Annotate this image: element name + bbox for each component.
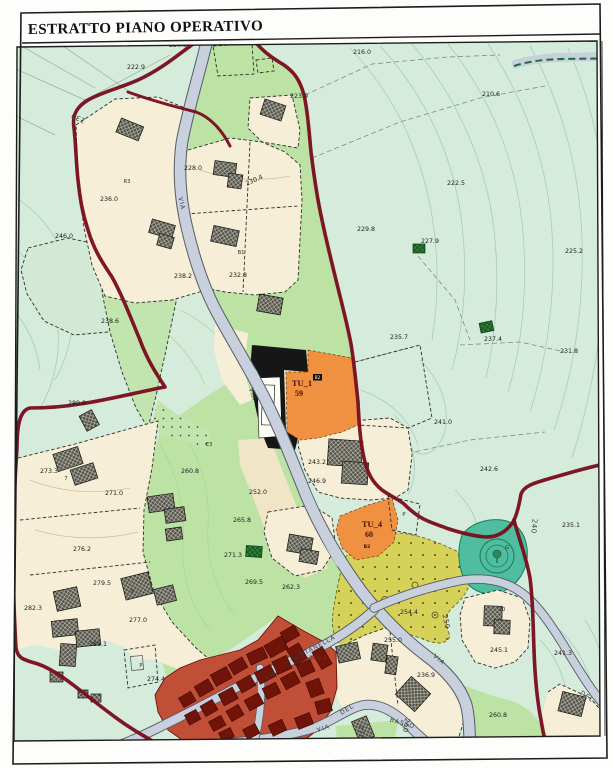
map-label: 238.2 <box>174 273 192 280</box>
scanned-plan-sheet: 220.5216.0222.9223.9210.6228.0230.4222.5… <box>0 0 613 768</box>
map-label: 241.3 <box>554 650 572 657</box>
map-label: 210.6 <box>482 91 500 98</box>
tu4-number: 60 <box>365 530 373 539</box>
map-label: 223.9 <box>290 93 308 100</box>
map-label: 232.8 <box>229 272 247 279</box>
map-label: 238.6 <box>101 318 119 325</box>
map-label: E3 <box>206 442 213 448</box>
map-label: P <box>402 512 405 518</box>
tu1-badge: B2 <box>315 375 321 380</box>
map-label: 216.0 <box>353 49 371 56</box>
map-label: 262.3 <box>282 584 300 591</box>
map-label: 281.1 <box>89 641 107 648</box>
map-label: 265.8 <box>233 517 251 524</box>
map-label: R3 <box>124 179 131 185</box>
tu1-code: TU_1 <box>292 378 312 388</box>
map-label: 237.4 <box>484 336 502 343</box>
map-label: 274.4 <box>147 676 165 683</box>
map-label: 246.9 <box>308 478 326 485</box>
map-label: 227.9 <box>421 238 439 245</box>
map-label: 241.0 <box>434 419 452 426</box>
map-label: 260.8 <box>181 468 199 475</box>
map-label: 255.0 <box>384 637 402 644</box>
map-label: 225.2 <box>565 248 583 255</box>
map-label: 271.3 <box>224 552 242 559</box>
map-border-double <box>602 41 605 736</box>
map-label: 236.0 <box>100 196 118 203</box>
map-label: 9 <box>130 589 133 595</box>
map-content: 220.5216.0222.9223.9210.6228.0230.4222.5… <box>0 38 613 768</box>
map-label: 273.3 <box>40 468 58 475</box>
map-label: 235.7 <box>390 334 408 341</box>
map-label: 235.1 <box>562 522 580 529</box>
map-label: 243.2 <box>308 459 326 466</box>
map-label: B1 <box>238 250 245 256</box>
map-label: 7 <box>64 476 67 482</box>
plan-map: 220.5216.0222.9223.9210.6228.0230.4222.5… <box>0 0 613 768</box>
map-label: 229.8 <box>357 226 375 233</box>
map-label: 277.0 <box>129 617 147 624</box>
tu1-number: 59 <box>295 389 303 398</box>
map-label: 289.9 <box>68 400 86 407</box>
map-label: P <box>139 663 142 669</box>
map-label: 269.5 <box>245 579 263 586</box>
map-label: 222.9 <box>127 64 145 71</box>
tu4-code: TU_4 <box>362 519 383 529</box>
map-label: 279.5 <box>93 580 111 587</box>
page-title: ESTRATTO PIANO OPERATIVO <box>28 18 263 38</box>
map-label: 266.2 <box>309 655 327 662</box>
map-label: 222.5 <box>447 180 465 187</box>
map-label: 231.8 <box>560 348 578 355</box>
map-label: 236.9 <box>417 672 435 679</box>
map-label: 240 <box>529 518 538 534</box>
tu4-badge: B2 <box>364 544 371 550</box>
map-label: 254.4 <box>400 609 418 616</box>
map-label: 246.0 <box>55 233 73 240</box>
map-label: 242.6 <box>480 466 498 473</box>
map-label: 228.0 <box>184 165 202 172</box>
map-label: G <box>505 545 509 551</box>
map-label: 260.8 <box>489 712 507 719</box>
map-label: 245.1 <box>490 647 508 654</box>
map-label: 271.0 <box>105 490 123 497</box>
map-label: 276.2 <box>73 546 91 553</box>
map-label: 10 <box>499 607 506 613</box>
map-label: 252.0 <box>249 489 267 496</box>
map-label: 282.3 <box>24 605 42 612</box>
